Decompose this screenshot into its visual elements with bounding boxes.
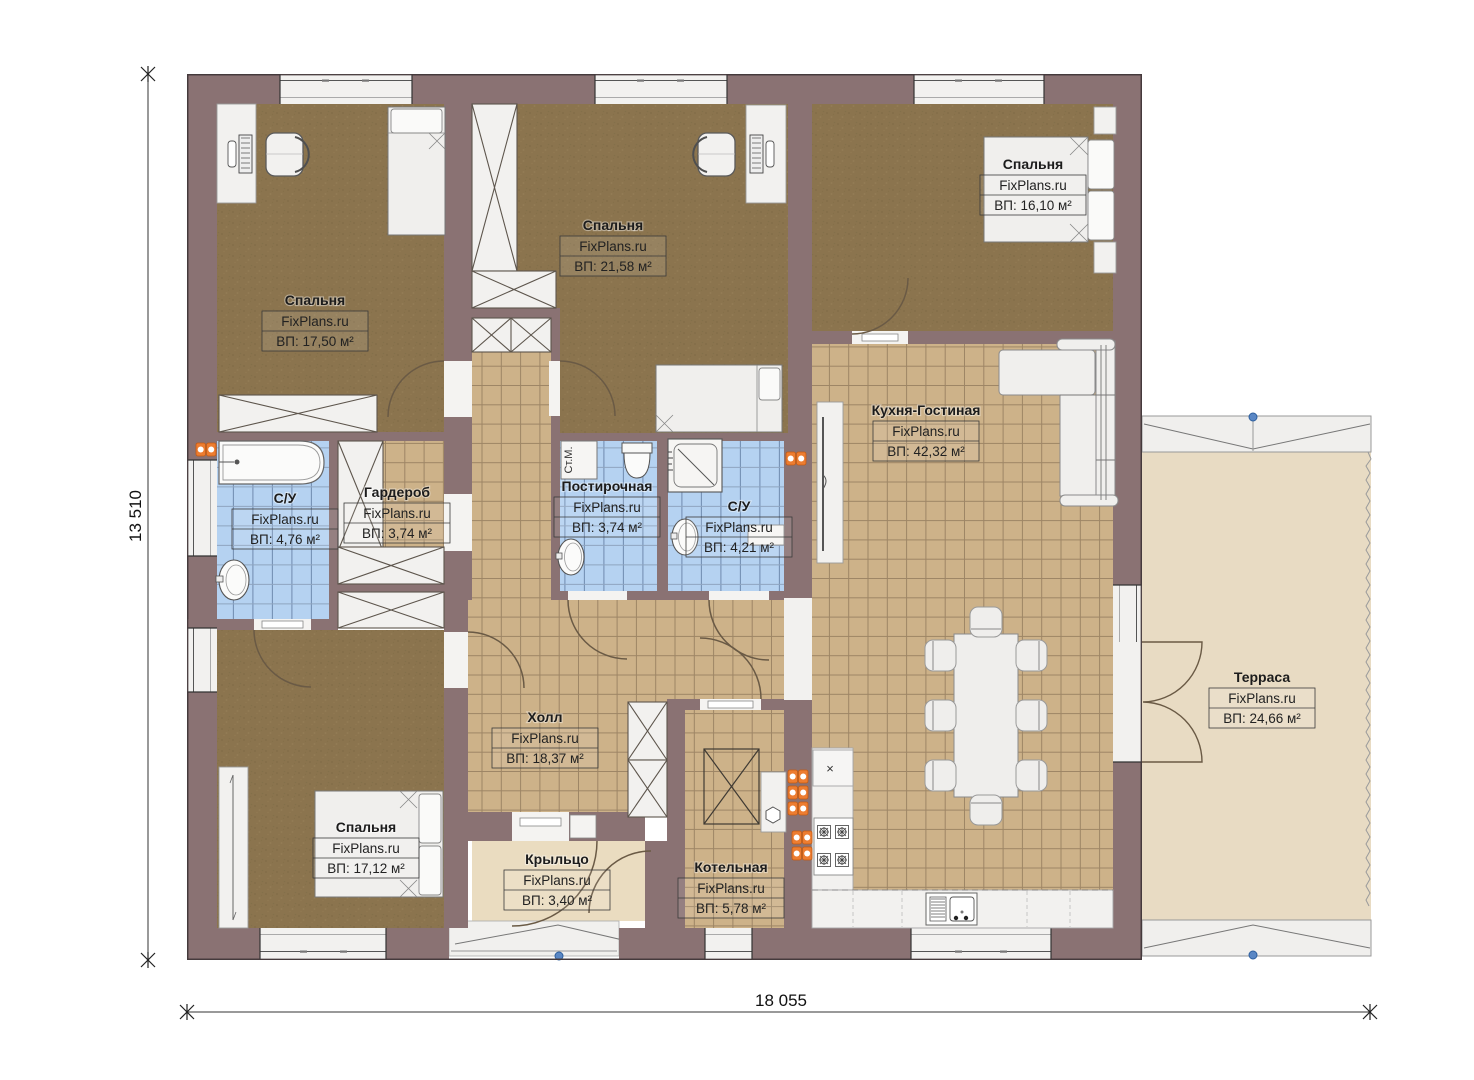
svg-text:FixPlans.ru: FixPlans.ru [363,506,431,521]
svg-text:С/У: С/У [728,498,751,514]
svg-text:ВП: 3,74 м²: ВП: 3,74 м² [362,526,433,541]
svg-text:ВП: 5,78 м²: ВП: 5,78 м² [696,901,767,916]
svg-text:FixPlans.ru: FixPlans.ru [523,873,591,888]
svg-text:ВП: 17,50 м²: ВП: 17,50 м² [276,334,354,349]
svg-text:Спальня: Спальня [285,292,345,308]
svg-text:18 055: 18 055 [755,991,807,1010]
svg-text:Кухня-Гостиная: Кухня-Гостиная [872,402,981,418]
svg-text:ВП: 24,66 м²: ВП: 24,66 м² [1223,711,1301,726]
svg-text:Терраса: Терраса [1234,669,1290,685]
svg-text:FixPlans.ru: FixPlans.ru [892,424,960,439]
svg-text:FixPlans.ru: FixPlans.ru [281,314,349,329]
svg-text:Крыльцо: Крыльцо [525,851,589,867]
svg-text:Котельная: Котельная [694,859,767,875]
svg-text:FixPlans.ru: FixPlans.ru [251,512,319,527]
svg-text:FixPlans.ru: FixPlans.ru [511,731,579,746]
svg-text:ВП: 4,76 м²: ВП: 4,76 м² [250,532,321,547]
svg-text:ВП: 16,10 м²: ВП: 16,10 м² [994,198,1072,213]
svg-text:13 510: 13 510 [126,490,145,542]
svg-text:Ст.М.: Ст.М. [563,446,575,473]
svg-text:Спальня: Спальня [336,819,396,835]
svg-text:ВП: 21,58 м²: ВП: 21,58 м² [574,259,652,274]
svg-text:Постирочная: Постирочная [562,478,653,494]
svg-text:FixPlans.ru: FixPlans.ru [332,841,400,856]
svg-text:С/У: С/У [274,490,297,506]
svg-text:FixPlans.ru: FixPlans.ru [573,500,641,515]
svg-text:ВП: 4,21 м²: ВП: 4,21 м² [704,540,775,555]
svg-text:FixPlans.ru: FixPlans.ru [999,178,1067,193]
svg-text:ВП: 18,37 м²: ВП: 18,37 м² [506,751,584,766]
svg-text:ВП: 42,32 м²: ВП: 42,32 м² [887,444,965,459]
svg-text:Спальня: Спальня [583,217,643,233]
svg-text:FixPlans.ru: FixPlans.ru [1228,691,1296,706]
svg-text:FixPlans.ru: FixPlans.ru [579,239,647,254]
svg-text:ВП: 17,12 м²: ВП: 17,12 м² [327,861,405,876]
svg-text:×: × [826,761,834,776]
svg-text:Холл: Холл [527,709,562,725]
svg-text:Спальня: Спальня [1003,156,1063,172]
svg-text:Гардероб: Гардероб [364,484,431,500]
svg-text:ВП: 3,74 м²: ВП: 3,74 м² [572,520,643,535]
svg-text:ВП: 3,40 м²: ВП: 3,40 м² [522,893,593,908]
svg-text:FixPlans.ru: FixPlans.ru [705,520,773,535]
svg-text:FixPlans.ru: FixPlans.ru [697,881,765,896]
